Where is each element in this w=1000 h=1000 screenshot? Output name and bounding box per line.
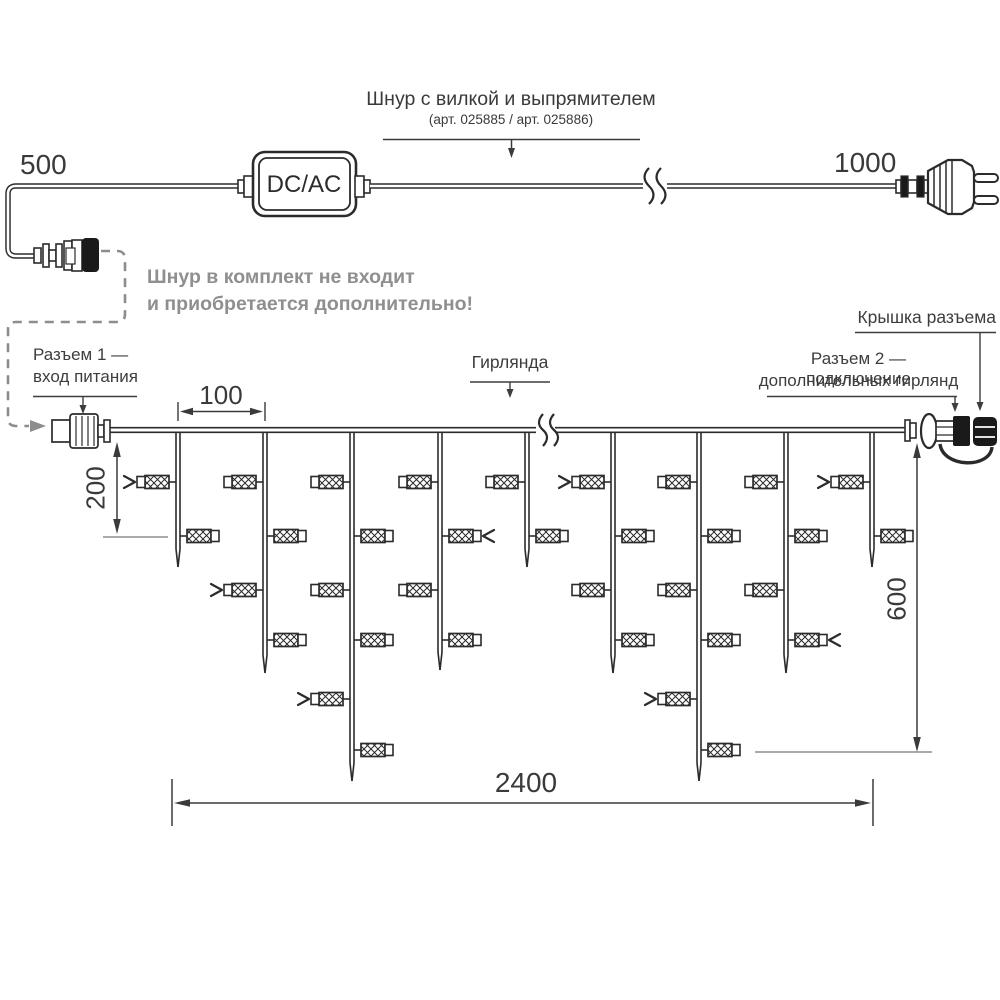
- lamp-cap: [137, 477, 145, 488]
- lamp-body: [232, 584, 256, 597]
- dim-1000-label: 1000: [834, 147, 896, 179]
- cord-subtitle: (арт. 025885 / арт. 025886): [331, 112, 691, 128]
- drop-tip: [786, 655, 788, 673]
- dim-100-label: 100: [186, 380, 256, 411]
- input-connector: [52, 414, 110, 448]
- plug-body: [928, 160, 974, 214]
- lamp-cap: [646, 531, 654, 542]
- blink-marker-arrow: [211, 584, 222, 596]
- cord-note-line1: Шнур в комплект не входит: [147, 266, 415, 289]
- power-plug: [896, 160, 998, 214]
- lamp-body: [666, 584, 690, 597]
- lamp-body: [881, 530, 905, 543]
- dim-200-label: 200: [81, 466, 112, 509]
- garland-label: Гирлянда: [450, 352, 570, 372]
- lamp-cap: [385, 745, 393, 756]
- lamp-cap: [905, 531, 913, 542]
- lamp-body: [407, 584, 431, 597]
- lamp-body: [187, 530, 211, 543]
- lamp-body: [536, 530, 560, 543]
- lamp-body: [407, 476, 431, 489]
- lamp-cap: [732, 745, 740, 756]
- lamp-cap: [658, 585, 666, 596]
- lamp-body: [145, 476, 169, 489]
- blink-marker-arrow: [645, 693, 656, 705]
- lamp-cap: [658, 477, 666, 488]
- cord-title: Шнур с вилкой и выпрямителем: [331, 88, 691, 110]
- lamp-cap: [211, 531, 219, 542]
- lamp-cap: [311, 477, 319, 488]
- connector2-pointer: [767, 397, 959, 413]
- plug-prong: [974, 174, 998, 182]
- lamp-cap: [399, 477, 407, 488]
- blink-marker-arrow: [829, 634, 840, 646]
- lamp-cap: [486, 477, 494, 488]
- lamp-body: [494, 476, 518, 489]
- connector-cap: [973, 417, 997, 446]
- lamp-cap: [745, 585, 753, 596]
- connector2-label-line2: дополнительных гирлянд: [757, 371, 960, 391]
- blink-marker-arrow: [124, 476, 135, 488]
- lamp-cap: [819, 635, 827, 646]
- drop-tip: [265, 655, 267, 673]
- dashed-route: [8, 251, 125, 432]
- drop-tip: [352, 763, 354, 781]
- blink-marker-arrow: [559, 476, 570, 488]
- drop-tip: [178, 549, 180, 567]
- lamp-body: [580, 476, 604, 489]
- drop-tip: [527, 549, 529, 567]
- lamp-cap: [646, 635, 654, 646]
- dashed-route-arrow: [30, 420, 46, 432]
- dim-600-label: 600: [882, 577, 913, 620]
- lamp-cap: [732, 635, 740, 646]
- lamp-body: [274, 530, 298, 543]
- lamp-cap: [831, 477, 839, 488]
- lamp-body: [795, 530, 819, 543]
- garland-wire: [109, 414, 905, 446]
- lamp-cap: [732, 531, 740, 542]
- lamp-cap: [399, 585, 407, 596]
- cap-label: Крышка разъема: [830, 307, 996, 327]
- lamp-cap: [819, 531, 827, 542]
- plug-prong: [974, 196, 998, 204]
- power-cord-right-section: [370, 168, 897, 204]
- lamp-cap: [298, 531, 306, 542]
- cord-note-line2: и приобретается дополнительно!: [147, 293, 473, 316]
- lamp-cap: [658, 694, 666, 705]
- lamp-cap: [560, 531, 568, 542]
- lamp-body: [708, 634, 732, 647]
- lamp-body: [666, 476, 690, 489]
- drop-tip: [613, 655, 615, 673]
- lamp-body: [319, 584, 343, 597]
- lamp-cap: [385, 635, 393, 646]
- cord-title-pointer: [383, 140, 640, 159]
- lamp-body: [361, 634, 385, 647]
- garland-label-pointer: [470, 382, 550, 398]
- lamp-body: [361, 744, 385, 757]
- connector2-body: [953, 416, 970, 446]
- lamp-cap: [572, 585, 580, 596]
- icicle-garland-diagram: Шнур с вилкой и выпрямителем (арт. 02588…: [0, 0, 1000, 1000]
- lamp-body: [839, 476, 863, 489]
- lamp-cap: [224, 477, 232, 488]
- lamp-cap: [572, 477, 580, 488]
- lamp-body: [319, 476, 343, 489]
- lamp-body: [449, 530, 473, 543]
- lamp-body: [319, 693, 343, 706]
- lamp-cap: [473, 531, 481, 542]
- lamp-body: [274, 634, 298, 647]
- blink-marker-arrow: [818, 476, 829, 488]
- lamp-cap: [473, 635, 481, 646]
- drop-tip: [440, 652, 442, 670]
- lamp-body: [795, 634, 819, 647]
- dim-500-label: 500: [20, 149, 67, 181]
- lamp-body: [753, 584, 777, 597]
- connector1-label-line1: Разъем 1 —: [33, 345, 128, 365]
- lamp-body: [708, 744, 732, 757]
- lamp-body: [753, 476, 777, 489]
- lamp-cap: [385, 531, 393, 542]
- lamp-body: [666, 693, 690, 706]
- drop-tip: [872, 549, 874, 567]
- lamp-cap: [298, 635, 306, 646]
- lamp-body: [622, 634, 646, 647]
- lamp-body: [232, 476, 256, 489]
- cord-connector-cap: [82, 238, 99, 272]
- lamp-body: [622, 530, 646, 543]
- lamp-cap: [311, 694, 319, 705]
- connector1-pointer: [33, 397, 137, 415]
- drop-tip: [699, 763, 701, 781]
- blink-marker-arrow: [298, 693, 309, 705]
- garland-break-mark: [539, 414, 558, 446]
- cord-break-mark: [645, 168, 666, 204]
- lamp-body: [580, 584, 604, 597]
- converter-label: DC/AC: [254, 171, 354, 199]
- lamp-body: [708, 530, 732, 543]
- lamp-body: [449, 634, 473, 647]
- connector1-label-line2: вход питания: [33, 367, 138, 387]
- cord-end-connector: [34, 238, 99, 272]
- lamp-cap: [311, 585, 319, 596]
- blink-marker-arrow: [483, 530, 494, 542]
- lamp-cap: [745, 477, 753, 488]
- dim-200-line: [103, 442, 168, 537]
- garland-drops: [124, 433, 913, 781]
- cap-tether: [940, 444, 992, 463]
- dim-2400-label: 2400: [466, 767, 586, 799]
- lamp-body: [361, 530, 385, 543]
- lamp-cap: [224, 585, 232, 596]
